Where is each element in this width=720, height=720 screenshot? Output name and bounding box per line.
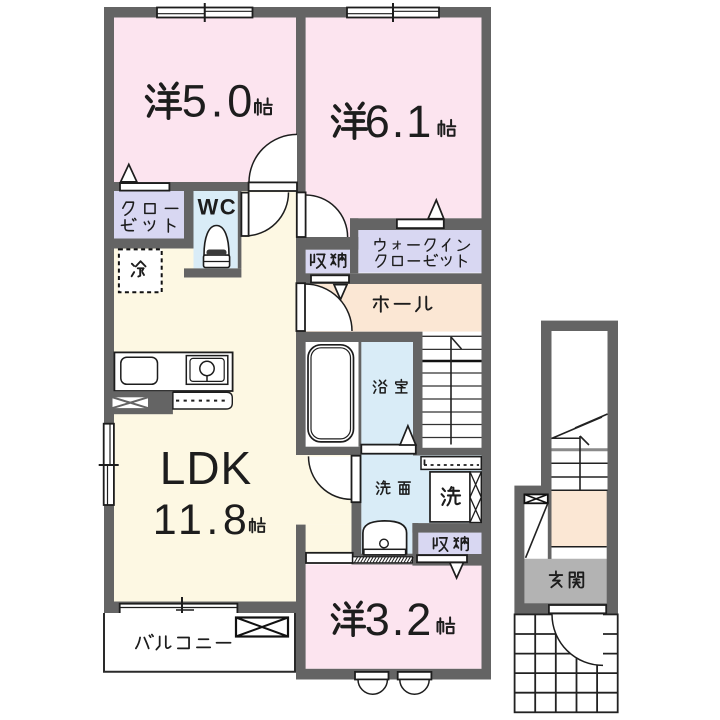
svg-text:3.2: 3.2 [365, 594, 434, 645]
svg-text:WC: WC [197, 194, 237, 219]
svg-text:5.0: 5.0 [182, 76, 257, 127]
svg-text:LDK: LDK [160, 442, 252, 494]
svg-text:11.8: 11.8 [153, 496, 252, 544]
svg-text:6.1: 6.1 [365, 96, 434, 147]
